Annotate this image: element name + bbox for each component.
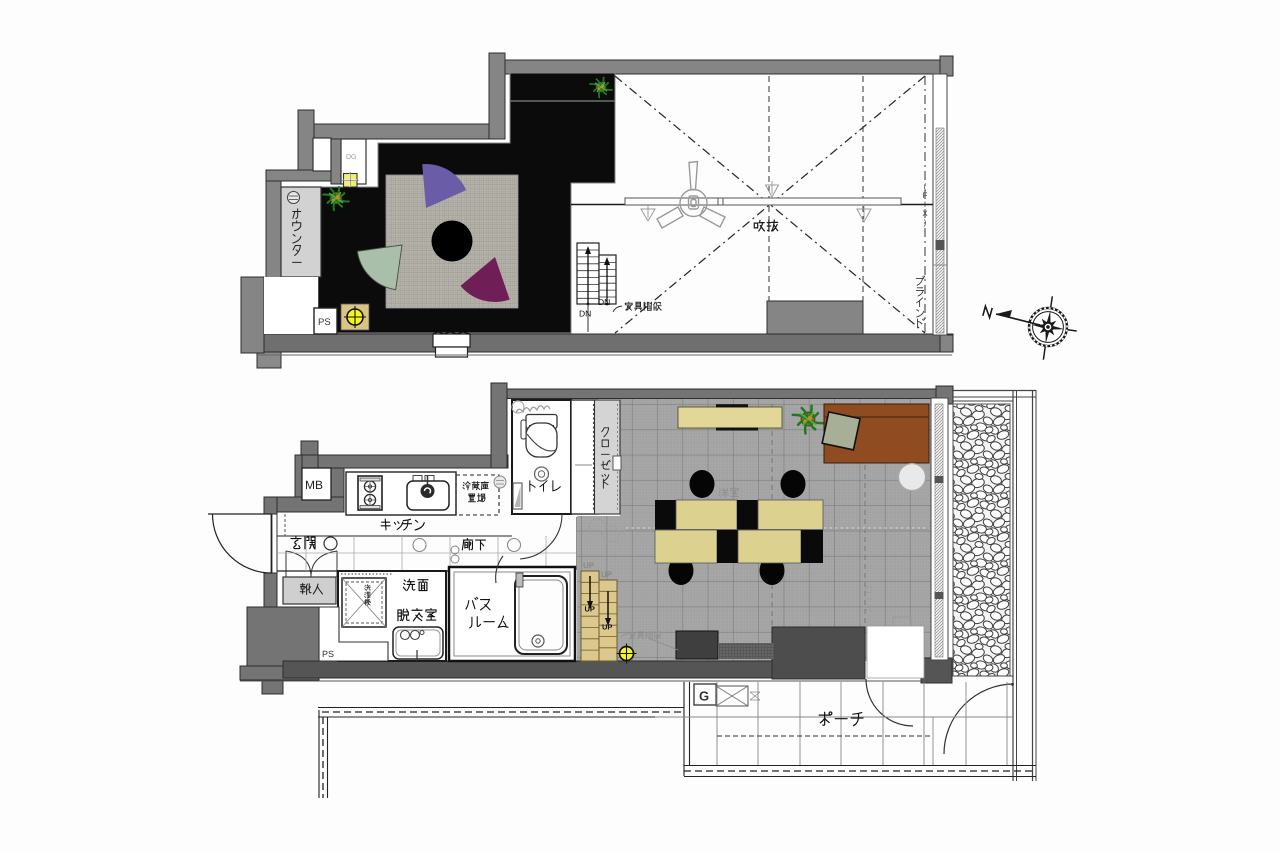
svg-text:MB: MB	[305, 478, 323, 492]
svg-text:UP: UP	[585, 605, 595, 614]
svg-text:UP: UP	[602, 623, 612, 632]
svg-text:UP: UP	[601, 570, 613, 579]
svg-text:F: F	[923, 191, 928, 200]
svg-text:DG: DG	[346, 154, 357, 161]
svg-text:X: X	[922, 209, 928, 218]
svg-text:PS: PS	[322, 649, 334, 659]
svg-text:PS: PS	[318, 317, 331, 328]
svg-text:G: G	[699, 689, 709, 704]
svg-text:(: (	[924, 182, 927, 191]
svg-text:I: I	[924, 200, 926, 209]
svg-text:DN: DN	[579, 309, 591, 319]
svg-text:): )	[924, 218, 927, 227]
svg-text:UP: UP	[583, 561, 595, 570]
svg-text:DN: DN	[598, 297, 610, 307]
